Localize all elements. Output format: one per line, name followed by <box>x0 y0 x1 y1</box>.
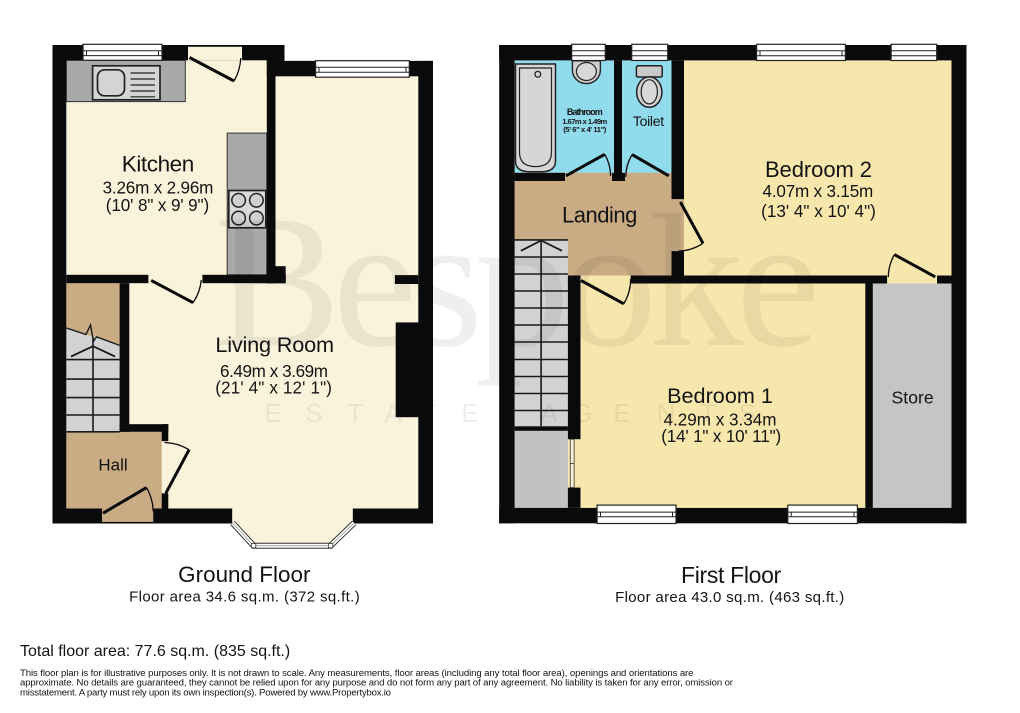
svg-text:First Floor: First Floor <box>681 562 782 588</box>
svg-text:3.26m x 2.96m: 3.26m x 2.96m <box>103 178 214 197</box>
svg-text:Floor area 34.6 sq.m. (372 sq.: Floor area 34.6 sq.m. (372 sq.ft.) <box>129 588 360 605</box>
svg-text:(14' 1" x 10' 11"): (14' 1" x 10' 11") <box>661 427 781 446</box>
svg-text:Floor area 43.0 sq.m. (463 sq.: Floor area 43.0 sq.m. (463 sq.ft.) <box>615 589 844 606</box>
svg-text:Bespoke: Bespoke <box>214 177 814 387</box>
svg-text:Toilet: Toilet <box>633 113 664 129</box>
svg-text:(10' 8" x 9' 9"): (10' 8" x 9' 9") <box>106 196 209 215</box>
svg-text:Bathroom: Bathroom <box>567 107 603 117</box>
svg-text:Kitchen: Kitchen <box>122 152 195 177</box>
svg-text:misstatement. A party must rel: misstatement. A party must rely upon its… <box>20 687 391 698</box>
svg-text:Store: Store <box>892 388 934 408</box>
svg-text:Ground Floor: Ground Floor <box>178 562 311 587</box>
svg-text:Total floor area: 77.6 sq.m. (: Total floor area: 77.6 sq.m. (835 sq.ft.… <box>20 643 290 660</box>
svg-text:Hall: Hall <box>98 456 127 475</box>
svg-text:(5' 6" x 4' 11"): (5' 6" x 4' 11") <box>563 125 606 134</box>
